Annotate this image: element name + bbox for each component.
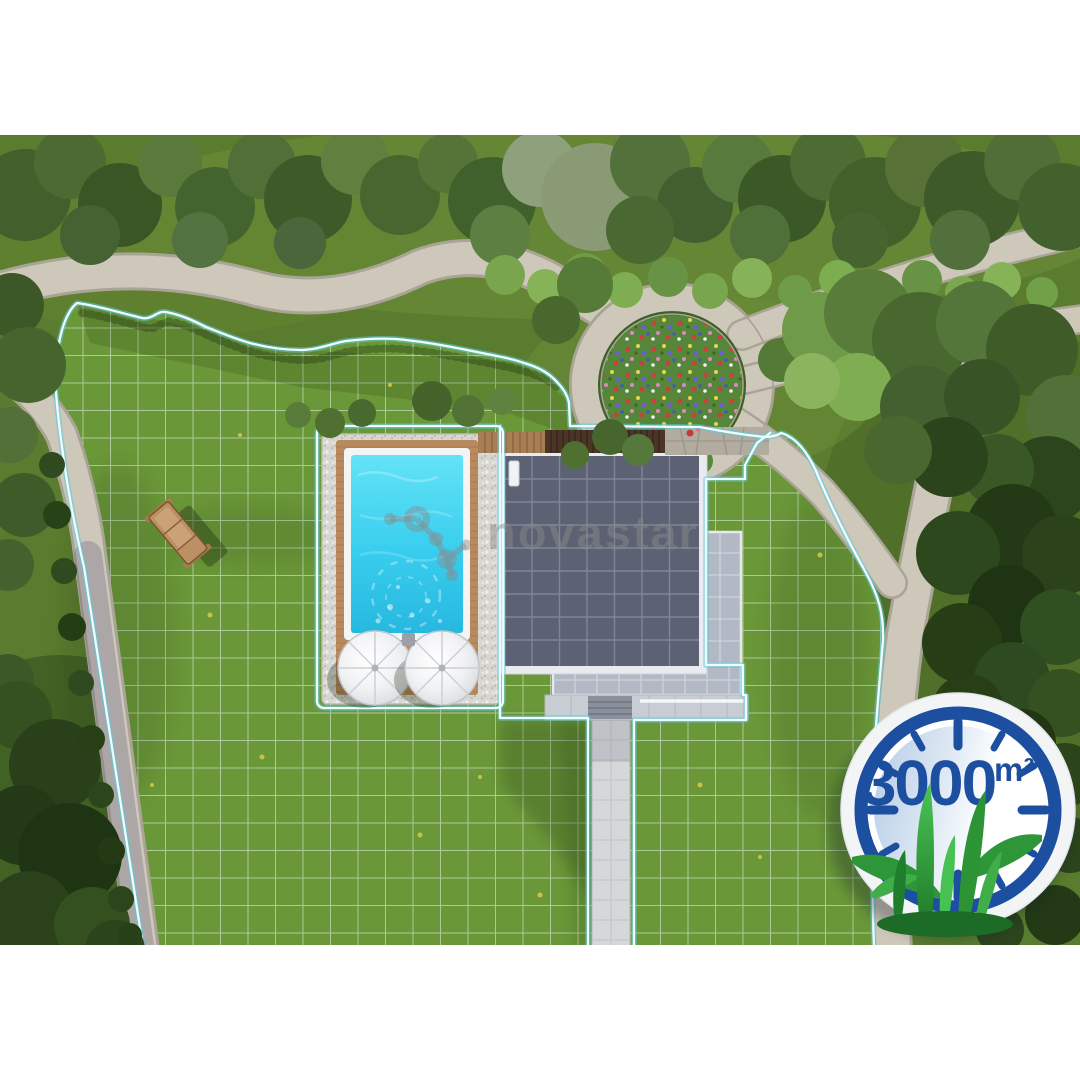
pool-water — [351, 455, 463, 633]
deck-table — [402, 633, 415, 646]
roof-vent — [509, 461, 519, 486]
terrace-steps — [588, 696, 632, 719]
watermark-text: novastar — [487, 506, 699, 559]
poster-canvas: novastar 3000 m² — [0, 0, 1080, 1080]
scene-svg: novastar 3000 m² — [0, 135, 1080, 945]
walkway — [592, 720, 630, 945]
badge-area-unit: m² — [994, 751, 1034, 788]
patio-umbrellas — [327, 631, 479, 708]
aerial-garden-render: novastar 3000 m² — [0, 135, 1080, 945]
